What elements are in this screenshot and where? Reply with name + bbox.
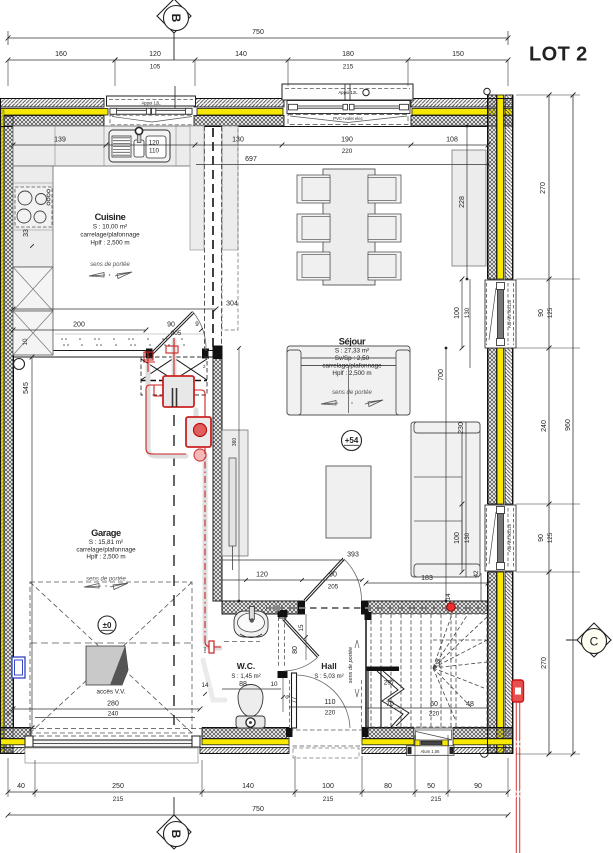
- svg-text:215: 215: [343, 64, 354, 71]
- svg-text:S : 5,03 m²: S : 5,03 m²: [314, 674, 343, 680]
- svg-text:750: 750: [252, 29, 264, 36]
- svg-text:183: 183: [421, 575, 433, 582]
- svg-text:9: 9: [285, 695, 292, 699]
- svg-text:10: 10: [270, 681, 278, 688]
- svg-text:160: 160: [55, 51, 67, 58]
- svg-text:Séjour: Séjour: [339, 337, 366, 347]
- svg-text:360: 360: [232, 438, 238, 447]
- svg-text:180: 180: [342, 51, 354, 58]
- svg-text:140: 140: [242, 783, 254, 790]
- svg-text:100: 100: [454, 307, 461, 319]
- svg-text:200: 200: [73, 322, 85, 329]
- svg-text:545: 545: [23, 382, 30, 394]
- svg-text:697: 697: [245, 156, 257, 163]
- svg-text:carrelage/plafonnage: carrelage/plafonnage: [322, 363, 382, 370]
- svg-text:sens de portée: sens de portée: [332, 390, 372, 396]
- svg-text:190: 190: [341, 137, 353, 144]
- svg-text:PVC+volet elec: PVC+volet elec: [333, 116, 363, 121]
- svg-text:Sv/Sp : 2,50: Sv/Sp : 2,50: [335, 355, 370, 362]
- svg-text:Hplf : 2,500 m: Hplf : 2,500 m: [90, 240, 129, 247]
- svg-text:sens de portée: sens de portée: [90, 262, 130, 268]
- svg-text:40: 40: [17, 783, 25, 790]
- svg-text:Hplf : 2,500 m: Hplf : 2,500 m: [86, 554, 125, 561]
- svg-text:125: 125: [547, 532, 554, 543]
- svg-text:48: 48: [466, 701, 474, 708]
- svg-text:100: 100: [322, 783, 334, 790]
- svg-text:280: 280: [107, 701, 119, 708]
- svg-text:393: 393: [347, 552, 359, 559]
- svg-text:accès V.V.: accès V.V.: [97, 689, 126, 696]
- svg-text:112: 112: [436, 658, 442, 668]
- svg-text:140: 140: [235, 51, 247, 58]
- svg-text:B: B: [169, 830, 183, 839]
- svg-text:215: 215: [113, 796, 124, 803]
- svg-text:90: 90: [167, 322, 175, 329]
- svg-text:304: 304: [226, 301, 238, 308]
- svg-text:700: 700: [438, 369, 445, 381]
- svg-text:carrelage/plafonnage: carrelage/plafonnage: [80, 232, 140, 239]
- svg-text:220: 220: [342, 148, 353, 155]
- svg-text:B: B: [169, 14, 183, 23]
- svg-text:205: 205: [171, 330, 182, 337]
- svg-text:S : 1,45 m²: S : 1,45 m²: [231, 674, 260, 680]
- svg-text:960: 960: [565, 419, 572, 431]
- svg-text:750: 750: [252, 806, 264, 813]
- svg-text:sens de portée: sens de portée: [348, 647, 354, 683]
- svg-text:10: 10: [22, 338, 29, 346]
- svg-text:240: 240: [108, 711, 119, 718]
- svg-text:+54: +54: [345, 436, 359, 445]
- svg-text:C: C: [590, 635, 599, 649]
- svg-text:220: 220: [325, 710, 336, 717]
- svg-text:130: 130: [464, 532, 471, 543]
- svg-text:S : 15,81 m²: S : 15,81 m²: [89, 539, 123, 546]
- svg-text:120: 120: [149, 51, 161, 58]
- svg-text:215: 215: [323, 796, 334, 803]
- svg-text:80: 80: [292, 646, 299, 654]
- svg-text:±0: ±0: [103, 621, 112, 630]
- svg-text:S : 27,33 m²: S : 27,33 m²: [335, 348, 369, 355]
- svg-text:270: 270: [540, 182, 547, 194]
- svg-text:90: 90: [538, 534, 545, 542]
- svg-text:Cuisine: Cuisine: [95, 212, 126, 222]
- svg-text:120: 120: [149, 140, 160, 147]
- svg-text:130: 130: [464, 307, 471, 318]
- svg-text:90: 90: [329, 572, 337, 579]
- svg-text:Hall: Hall: [321, 661, 337, 671]
- svg-text:228: 228: [459, 196, 466, 208]
- svg-text:W.C.: W.C.: [237, 661, 255, 671]
- svg-text:Garage: Garage: [91, 528, 121, 538]
- svg-text:215: 215: [431, 796, 442, 803]
- svg-text:Alu+vitr 90/125: Alu+vitr 90/125: [507, 523, 512, 552]
- svg-text:9: 9: [6, 711, 10, 718]
- svg-text:77: 77: [291, 696, 298, 704]
- svg-text:220: 220: [429, 711, 440, 718]
- svg-text:rad: rad: [202, 647, 207, 653]
- svg-text:Alum 1,06: Alum 1,06: [421, 749, 441, 754]
- svg-text:15: 15: [298, 624, 305, 632]
- svg-text:70: 70: [386, 701, 394, 708]
- svg-text:LOT 2: LOT 2: [529, 44, 588, 66]
- svg-text:297: 297: [384, 680, 395, 687]
- svg-text:110: 110: [324, 699, 335, 706]
- svg-text:Hplf : 2,500 m: Hplf : 2,500 m: [332, 370, 371, 377]
- svg-text:90: 90: [474, 783, 482, 790]
- svg-text:sens de portée: sens de portée: [86, 577, 126, 583]
- svg-text:125: 125: [547, 307, 554, 318]
- svg-text:carrelage/plafonnage: carrelage/plafonnage: [76, 547, 136, 554]
- svg-text:S : 10,00 m²: S : 10,00 m²: [93, 224, 127, 231]
- svg-text:270: 270: [541, 657, 548, 669]
- svg-text:110: 110: [149, 148, 160, 155]
- svg-text:14: 14: [201, 682, 209, 689]
- svg-text:50: 50: [427, 783, 435, 790]
- svg-text:150: 150: [452, 51, 464, 58]
- svg-text:139: 139: [54, 137, 66, 144]
- svg-text:100: 100: [454, 532, 461, 544]
- svg-text:Alu+vitr 90/125: Alu+vitr 90/125: [507, 299, 512, 328]
- svg-text:Appui 12L: Appui 12L: [338, 90, 358, 95]
- svg-text:88: 88: [239, 681, 247, 688]
- svg-text:33: 33: [23, 229, 30, 237]
- svg-text:60: 60: [430, 701, 438, 708]
- svg-text:120: 120: [256, 572, 268, 579]
- svg-text:105: 105: [150, 64, 161, 71]
- svg-text:250: 250: [112, 783, 124, 790]
- svg-text:80: 80: [384, 783, 392, 790]
- svg-text:9: 9: [195, 321, 199, 328]
- svg-text:90: 90: [538, 309, 545, 317]
- svg-text:205: 205: [328, 584, 339, 591]
- svg-text:108: 108: [446, 137, 458, 144]
- svg-text:240: 240: [541, 420, 548, 432]
- svg-text:42: 42: [473, 570, 480, 578]
- svg-text:130: 130: [232, 137, 244, 144]
- svg-text:230: 230: [458, 422, 465, 434]
- svg-text:Appui 12L: Appui 12L: [141, 101, 161, 106]
